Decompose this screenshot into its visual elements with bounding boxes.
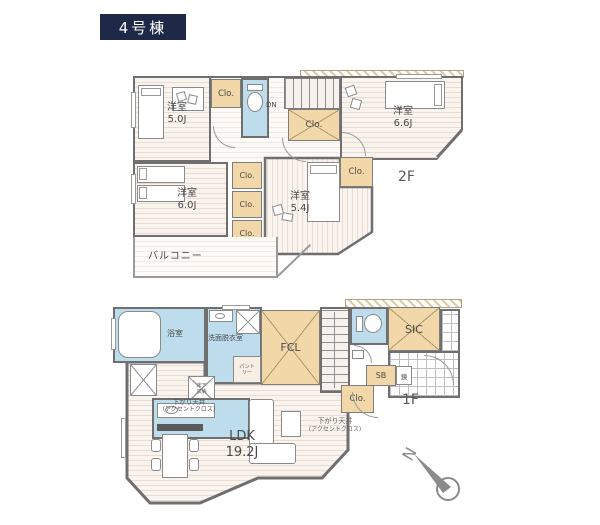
closet-2f-hall: Clo. xyxy=(288,109,340,141)
lowered-ceiling-note-kitchen: 下がり天井 (アクセントクロス) xyxy=(158,399,220,414)
room-label-2f-6_0: 洋室 6.0J xyxy=(162,188,212,211)
floor-text: 2F xyxy=(398,169,415,185)
closet-label: Clo. xyxy=(239,171,254,180)
floor-label-1f: 1F xyxy=(402,392,419,408)
closet-2f-5_4: Clo. xyxy=(340,157,373,187)
pillow-icon xyxy=(310,165,337,174)
bathroom-label: 浴室 xyxy=(167,329,183,338)
sink-oval-icon xyxy=(215,313,225,319)
cooktop-icon xyxy=(157,424,203,431)
room-label-2f-6_6: 洋室 6.6J xyxy=(378,106,428,129)
pantry-label: パントリー xyxy=(239,364,256,376)
shoe-box-1f: SB xyxy=(366,365,396,386)
entrance-tile-side xyxy=(440,309,460,353)
room-size: 6.0J xyxy=(178,200,197,211)
compass-icon: N xyxy=(398,436,473,511)
lowered-ceiling-text: 下がり天井 xyxy=(173,398,206,406)
window xyxy=(121,418,126,458)
bath-text: 浴室 xyxy=(167,329,183,338)
room-label-2f-5_4: 洋室 5.4J xyxy=(278,191,322,214)
lowered-ceiling-text: 下がり天井 xyxy=(318,417,353,425)
window xyxy=(111,318,116,350)
room-name: LDK xyxy=(229,429,255,444)
pillow-icon xyxy=(141,88,161,96)
north-label: N xyxy=(398,444,420,464)
room-size: 5.4J xyxy=(291,203,310,214)
pantry-1f: パントリー xyxy=(233,356,261,383)
window xyxy=(396,74,442,79)
fridge-space-icon xyxy=(130,364,157,396)
stairs-1f xyxy=(320,307,350,393)
family-closet-1f: FCL xyxy=(261,310,320,385)
toilet-icon xyxy=(364,314,382,333)
toilet-tank-icon xyxy=(356,316,363,332)
room-label-2f-5_0: 洋室 5.0J xyxy=(152,102,202,125)
room-name: 洋室 xyxy=(167,102,187,113)
room-name: 洋室 xyxy=(290,191,310,202)
tv-board-icon xyxy=(281,411,301,437)
toilet-icon xyxy=(247,92,263,112)
closet-2f-stack-2: Clo. xyxy=(232,191,262,218)
chair-icon xyxy=(189,458,199,471)
stairs-dn-label: DN xyxy=(266,101,277,109)
lowered-ceiling-sub: (アクセントクロス) xyxy=(309,426,361,433)
closet-label: Clo. xyxy=(348,167,364,177)
washer-icon xyxy=(236,310,260,334)
closet-label: Clo. xyxy=(239,200,254,209)
pillow-icon xyxy=(139,187,147,199)
sic-label: SIC xyxy=(405,323,423,336)
room-name: 洋室 xyxy=(177,188,197,199)
washroom-label: 洗面脱衣室 xyxy=(208,334,243,342)
balcony-label: バルコニー xyxy=(148,251,203,263)
closet-label: Clo. xyxy=(306,120,323,130)
dining-table-icon xyxy=(162,434,188,478)
underfloor-storage-label: 床下収納 xyxy=(196,383,207,395)
pillow-icon xyxy=(434,84,442,106)
window xyxy=(131,92,136,128)
lowered-ceiling-sub: (アクセントクロス) xyxy=(163,406,215,413)
room-size: 6.6J xyxy=(394,118,413,129)
room-size: 19.2J xyxy=(226,445,259,460)
window xyxy=(222,305,250,310)
floorplan-page: { "badge": { "text": "4号棟" }, "floor2": … xyxy=(0,0,600,525)
balcony-text: バルコニー xyxy=(148,251,203,262)
building-number-text: 4号棟 xyxy=(119,17,168,38)
mirror-1f: 鏡 xyxy=(396,366,412,385)
room-size: 5.0J xyxy=(168,114,187,125)
chair-icon xyxy=(151,439,161,452)
mirror-label: 鏡 xyxy=(401,371,408,381)
window xyxy=(131,174,136,204)
toilet-tank-icon xyxy=(247,84,263,91)
stairs-2f xyxy=(284,78,340,109)
chair-icon xyxy=(151,458,161,471)
sb-label: SB xyxy=(376,371,387,380)
stairs-arrow-line xyxy=(334,312,335,388)
dn-text: DN xyxy=(266,101,277,109)
shoes-in-closet-1f: SIC xyxy=(388,307,440,351)
closet-2f-top: Clo. xyxy=(211,79,241,108)
floor-label-2f: 2F xyxy=(398,169,415,185)
pillow-icon xyxy=(139,168,147,180)
bathtub-icon xyxy=(118,311,161,358)
room-label-1f-ldk: LDK 19.2J xyxy=(212,429,272,460)
door-arc xyxy=(352,392,378,418)
floor-text: 1F xyxy=(402,392,419,408)
fcl-label: FCL xyxy=(280,341,300,354)
closet-label: Clo. xyxy=(218,89,234,99)
building-number-badge: 4号棟 xyxy=(100,14,186,40)
washroom-text: 洗面脱衣室 xyxy=(208,334,243,342)
lowered-ceiling-note-hall: 下がり天井 (アクセントクロス) xyxy=(303,417,367,434)
door-arc xyxy=(354,345,372,363)
closet-2f-stack-1: Clo. xyxy=(232,162,262,189)
room-name: 洋室 xyxy=(393,106,413,117)
chair-icon xyxy=(189,439,199,452)
